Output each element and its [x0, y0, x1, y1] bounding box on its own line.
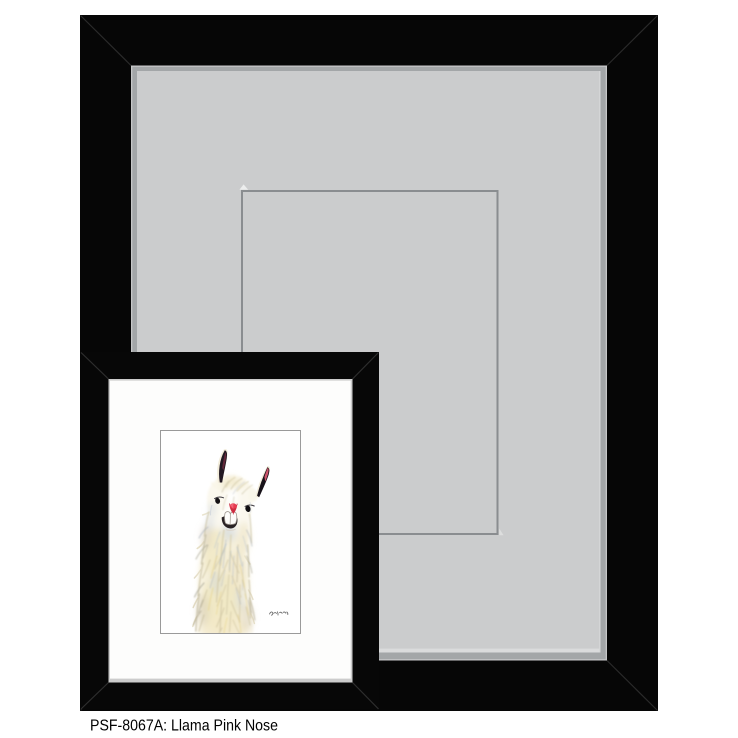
svg-text:PSF-8067A: Llama Pink Nose: PSF-8067A: Llama Pink Nose: [90, 718, 278, 735]
